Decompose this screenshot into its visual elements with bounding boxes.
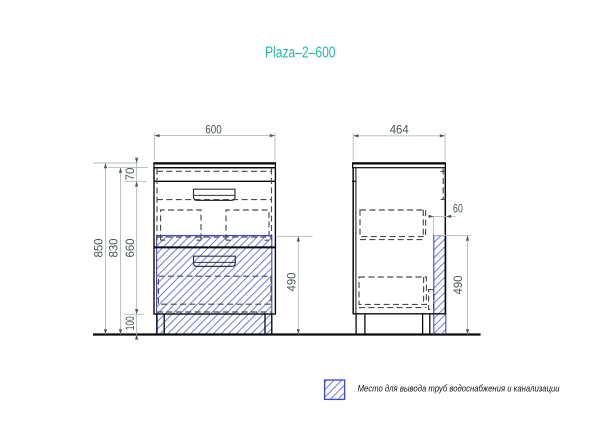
svg-text:830: 830 — [107, 238, 121, 257]
svg-text:660: 660 — [123, 238, 137, 257]
svg-text:70: 70 — [123, 167, 137, 180]
svg-text:Plaza–2–600: Plaza–2–600 — [265, 45, 336, 62]
svg-text:600: 600 — [205, 122, 222, 136]
svg-text:850: 850 — [92, 238, 106, 257]
svg-text:60: 60 — [453, 202, 463, 216]
svg-text:Место для вывода труб водоснаб: Место для вывода труб водоснабжения и ка… — [358, 383, 560, 393]
svg-text:490: 490 — [284, 272, 298, 291]
svg-text:100: 100 — [123, 316, 137, 330]
svg-text:464: 464 — [390, 123, 409, 137]
svg-text:490: 490 — [451, 275, 465, 294]
